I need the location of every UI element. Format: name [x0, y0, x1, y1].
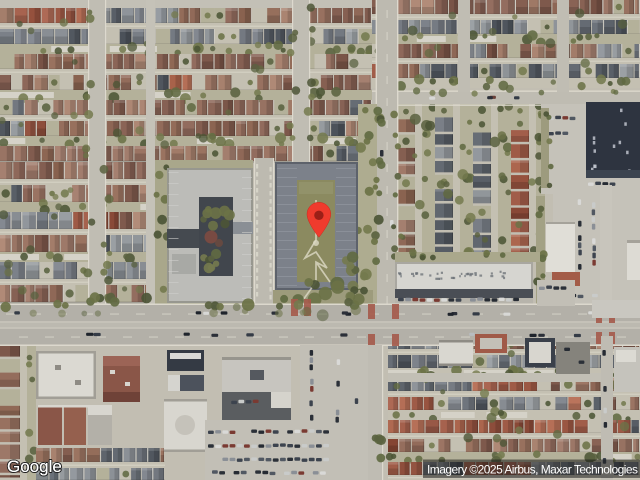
svg-text:Google: Google	[7, 457, 62, 476]
svg-text:Imagery ©2025 Airbus, Maxar Te: Imagery ©2025 Airbus, Maxar Technologies	[427, 463, 638, 477]
